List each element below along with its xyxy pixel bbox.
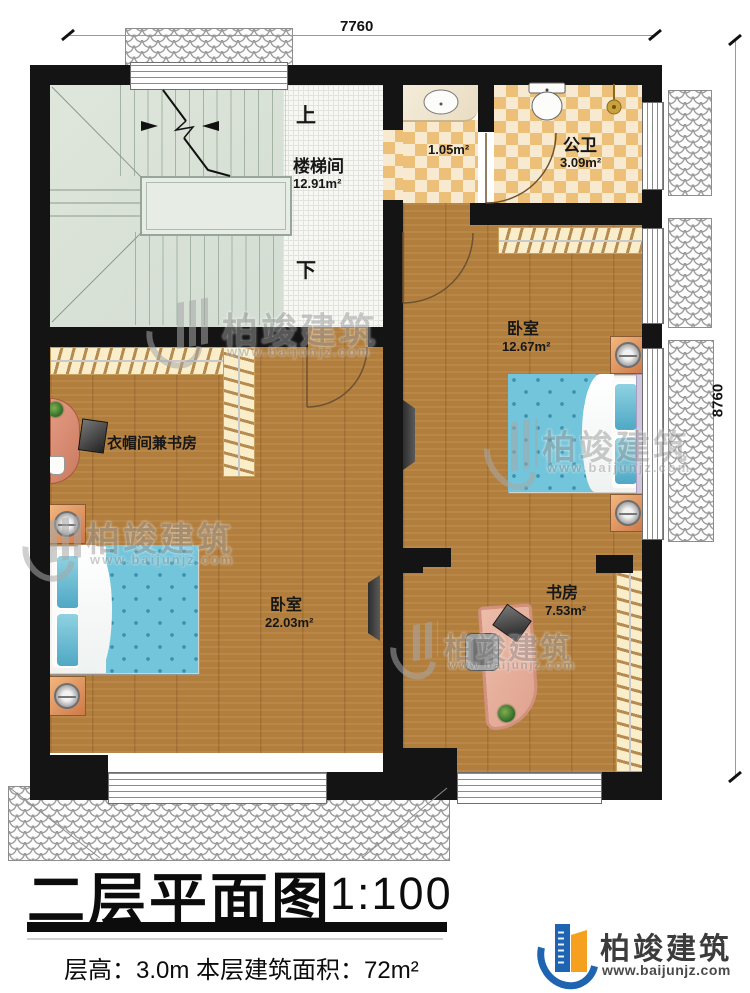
wall-segment (642, 85, 662, 102)
wall-segment (383, 748, 457, 772)
stair-treads-upper (120, 85, 286, 176)
nightstand-left-bottom (48, 676, 86, 716)
title-underline (27, 922, 447, 932)
plan-scale: 1:100 (330, 868, 453, 920)
company-logo: 柏竣建筑 www.baijunjz.com (538, 916, 750, 990)
bedroom-left-name: 卧室 (270, 598, 302, 615)
dimension-right-value: 8760 (710, 371, 727, 431)
dimension-top-value: 7760 (340, 18, 373, 35)
nightstand-knob (615, 500, 641, 526)
cloakroom-name: 衣帽间兼书房 (107, 436, 197, 452)
stair-landing-opening (140, 176, 292, 236)
nightstand-knob (615, 342, 641, 368)
cloakroom-cup (48, 456, 65, 475)
sink-counter (403, 85, 478, 122)
wall-segment (642, 538, 662, 800)
stairwell-name: 楼梯间 (293, 158, 344, 176)
wall-segment (30, 755, 108, 772)
watermark-url: www.baijunjz.com (90, 552, 234, 567)
window-right-2 (642, 228, 664, 324)
wall-segment (596, 555, 633, 573)
floor-plan-page: 7760 8760 (0, 0, 750, 993)
bedroom-right-name: 卧室 (507, 322, 539, 339)
watermark-url: www.baijunjz.com (227, 344, 371, 359)
window-right-1 (642, 102, 664, 190)
tv-icon-bedroom-right (403, 400, 415, 470)
stair-up-label: 上 (296, 106, 316, 127)
wall-segment (325, 772, 457, 800)
watermark-logo-icon (24, 518, 84, 578)
study-area: 7.53m² (545, 604, 586, 618)
watermark-logo-icon (148, 300, 214, 366)
logo-building-orange-icon (571, 930, 587, 972)
window-study-bottom (457, 772, 602, 804)
roof-right-1 (668, 90, 712, 196)
logo-building-blue-icon (555, 924, 570, 972)
cloakroom-plant (48, 402, 63, 417)
watermark-url: www.baijunjz.com (448, 658, 576, 672)
study-name: 书房 (546, 586, 578, 603)
bedroom-right-area: 12.67m² (502, 340, 550, 354)
window-stairwell-top (130, 62, 288, 90)
bathroom-name: 公卫 (563, 137, 597, 155)
watermark-logo-icon (392, 623, 440, 675)
wall-segment (30, 65, 130, 85)
roof-right-2 (668, 218, 712, 328)
wardrobe-cloakroom-column (223, 347, 255, 477)
corridor-floor (403, 120, 478, 203)
wall-segment (642, 322, 662, 348)
dimension-line-right (735, 40, 736, 777)
title-underline-thin (27, 938, 443, 940)
study-plant (498, 705, 515, 722)
tv-icon-bedroom-left (368, 575, 380, 641)
watermark-logo-icon (488, 420, 540, 490)
logo-site-text: www.baijunjz.com (602, 962, 731, 978)
cloakroom-computer (78, 418, 108, 453)
stairwell-area: 12.91m² (293, 177, 341, 191)
corridor-door-gap-floor (383, 130, 403, 200)
dimension-line-top (68, 35, 655, 36)
wall-segment (30, 772, 108, 800)
wall-segment (30, 85, 50, 757)
bedroom-left-area: 22.03m² (265, 616, 313, 630)
nightstand-right-bottom (610, 494, 646, 532)
wall-segment (642, 188, 662, 228)
floor-info: 层高：3.0m 本层建筑面积：72m² (64, 950, 419, 985)
nightstand-knob (54, 683, 80, 709)
wall-segment (478, 85, 494, 132)
wardrobe-bedroom-right (498, 227, 652, 254)
wall-segment (470, 203, 662, 225)
window-bedroom-left-bottom (108, 772, 327, 804)
wardrobe-study (616, 570, 644, 772)
corridor-area: 1.05m² (428, 143, 469, 157)
bathroom-area: 3.09m² (560, 156, 601, 170)
wall-segment (383, 85, 403, 130)
stair-down-label: 下 (296, 261, 316, 282)
watermark-url: www.baijunjz.com (547, 460, 691, 475)
nightstand-right-top (610, 336, 646, 374)
wall-segment (403, 548, 423, 573)
wall-segment (286, 65, 662, 85)
